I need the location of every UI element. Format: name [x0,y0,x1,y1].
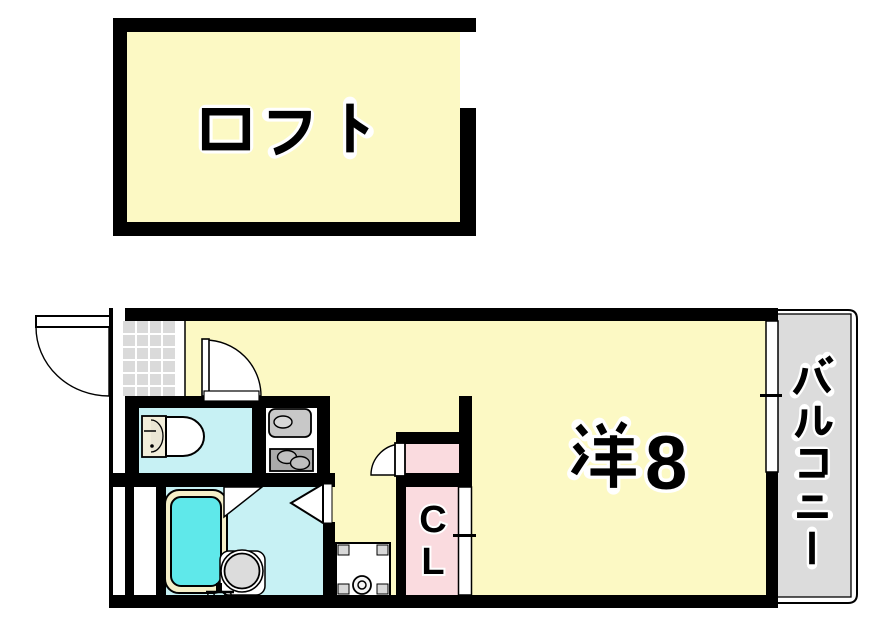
toilet-bowl [166,417,204,456]
loft-room [113,18,476,236]
washing-machine-pan [336,543,390,596]
floor-plan: 8 C L [0,0,896,631]
closet-letter-l: L [421,541,444,583]
closet-label: C L [419,499,446,583]
closet-letter-c: C [419,499,446,541]
kitchen-counter [265,402,318,475]
toilet-fixture [142,416,204,457]
loft-wall-opening [460,32,476,108]
loft-floor [127,32,460,222]
upper-closet-floor [404,444,459,473]
pipe-shaft [134,487,156,595]
door-threshold [204,391,259,401]
washbasin [225,554,260,589]
bathtub [171,497,221,586]
floor-plan-canvas: 8 C L [0,0,896,631]
main-room-size: 8 [645,421,687,506]
entrance-genkan [123,321,185,396]
balcony [776,310,857,603]
drain-icon [353,576,371,594]
genkan-step [175,321,185,396]
entrance-door [36,316,110,396]
